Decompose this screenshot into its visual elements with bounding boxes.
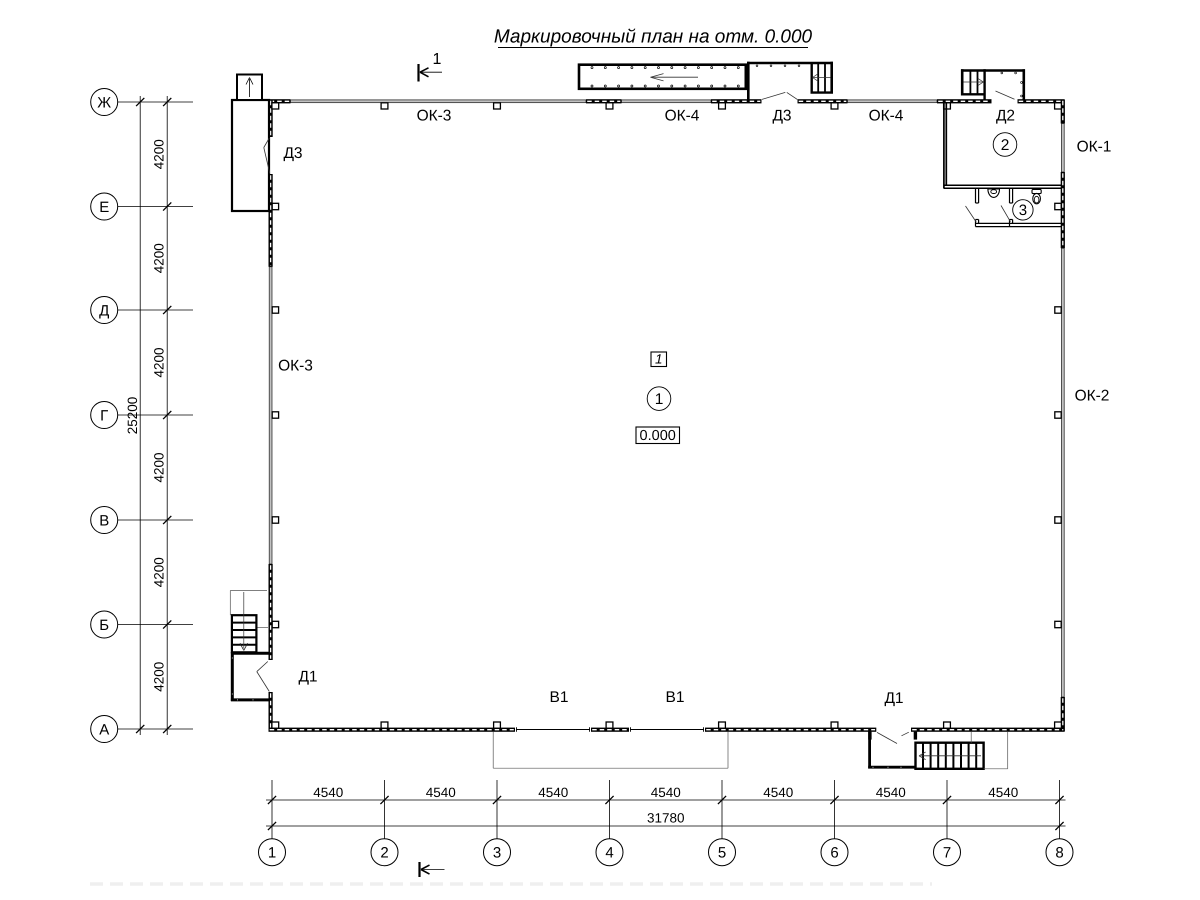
svg-text:ОК-3: ОК-3 [278, 358, 313, 375]
svg-text:Ж: Ж [97, 94, 111, 111]
svg-text:Д3: Д3 [283, 145, 302, 162]
svg-text:4540: 4540 [538, 785, 568, 800]
svg-text:4540: 4540 [763, 785, 793, 800]
svg-text:Маркировочный план на отм. 0.0: Маркировочный план на отм. 0.000 [494, 27, 813, 48]
svg-text:2: 2 [1001, 137, 1010, 154]
svg-text:4540: 4540 [426, 785, 456, 800]
svg-text:Д3: Д3 [772, 107, 791, 124]
svg-text:Д2: Д2 [996, 107, 1015, 124]
svg-text:Д: Д [99, 302, 109, 319]
svg-text:7: 7 [943, 845, 951, 862]
svg-text:ОК-4: ОК-4 [665, 107, 700, 124]
svg-text:В1: В1 [550, 689, 569, 706]
svg-text:ОК-3: ОК-3 [417, 107, 452, 124]
svg-text:4540: 4540 [988, 785, 1018, 800]
svg-text:31780: 31780 [647, 810, 685, 825]
svg-text:4200: 4200 [152, 243, 167, 273]
svg-text:4540: 4540 [876, 785, 906, 800]
svg-text:Д1: Д1 [298, 669, 317, 686]
svg-text:Г: Г [100, 407, 108, 424]
svg-text:1: 1 [655, 352, 663, 367]
svg-text:3: 3 [493, 845, 501, 862]
svg-text:3: 3 [1019, 202, 1027, 219]
svg-text:5: 5 [718, 845, 726, 862]
svg-text:В: В [99, 512, 109, 529]
svg-text:В1: В1 [666, 689, 685, 706]
svg-text:ОК-2: ОК-2 [1075, 388, 1110, 405]
svg-text:8: 8 [1055, 845, 1063, 862]
svg-text:25200: 25200 [125, 397, 140, 435]
svg-text:4200: 4200 [152, 139, 167, 169]
svg-text:4200: 4200 [152, 452, 167, 482]
svg-text:4200: 4200 [152, 662, 167, 692]
svg-text:0.000: 0.000 [640, 428, 676, 444]
svg-text:4200: 4200 [152, 557, 167, 587]
svg-text:1: 1 [268, 845, 276, 862]
svg-text:Е: Е [99, 199, 109, 216]
svg-text:1: 1 [655, 391, 664, 408]
svg-text:А: А [99, 721, 109, 738]
svg-text:4200: 4200 [152, 347, 167, 377]
svg-text:ОК-1: ОК-1 [1077, 139, 1112, 156]
svg-text:4540: 4540 [651, 785, 681, 800]
svg-text:2: 2 [380, 845, 388, 862]
svg-text:4540: 4540 [313, 785, 343, 800]
svg-text:4: 4 [605, 845, 613, 862]
svg-text:Д1: Д1 [884, 690, 903, 707]
svg-text:ОК-4: ОК-4 [869, 107, 904, 124]
svg-text:6: 6 [830, 845, 838, 862]
svg-text:Б: Б [99, 617, 109, 634]
svg-text:1: 1 [433, 51, 442, 68]
